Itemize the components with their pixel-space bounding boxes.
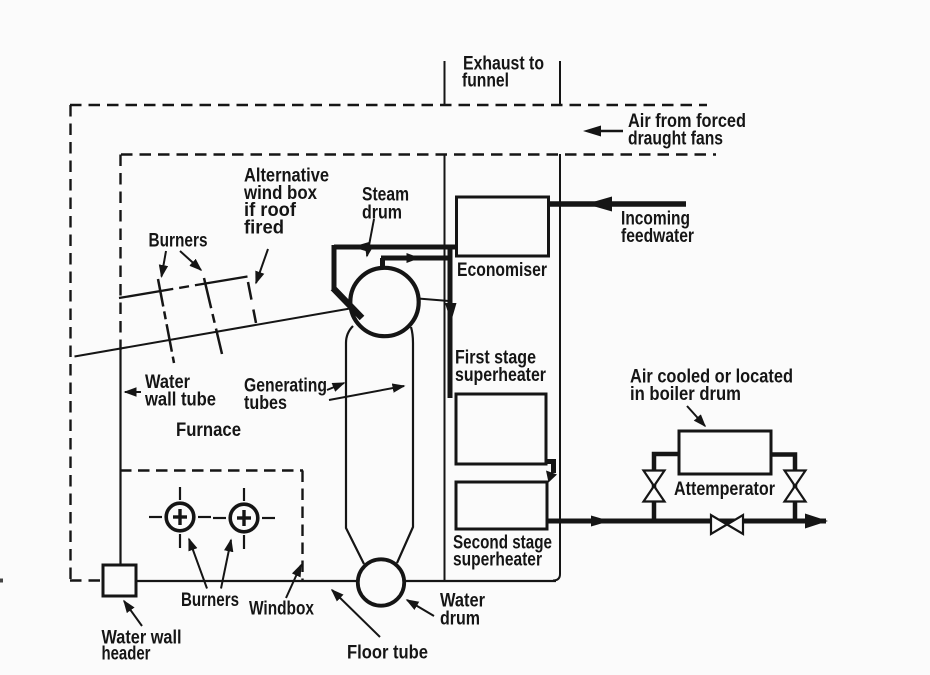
svg-text:Burners: Burners — [181, 590, 239, 611]
svg-text:fired: fired — [244, 217, 284, 238]
svg-text:Windbox: Windbox — [249, 598, 314, 619]
svg-text:wall tube: wall tube — [144, 390, 216, 411]
svg-text:header: header — [102, 644, 151, 665]
svg-text:funnel: funnel — [462, 71, 509, 92]
svg-text:superheater: superheater — [453, 550, 542, 571]
svg-text:superheater: superheater — [455, 365, 546, 386]
svg-text:Furnace: Furnace — [176, 420, 241, 441]
svg-text:feedwater: feedwater — [621, 226, 694, 247]
svg-text:in boiler drum: in boiler drum — [630, 384, 741, 405]
svg-text:drum: drum — [440, 609, 480, 630]
svg-text:drum: drum — [362, 203, 402, 224]
svg-text:Burners: Burners — [149, 231, 208, 252]
svg-text:Attemperator: Attemperator — [674, 479, 776, 500]
svg-text:Economiser: Economiser — [457, 260, 547, 281]
svg-text:draught fans: draught fans — [628, 129, 723, 150]
svg-text:Floor tube: Floor tube — [347, 643, 428, 664]
svg-text:tubes: tubes — [244, 393, 287, 414]
